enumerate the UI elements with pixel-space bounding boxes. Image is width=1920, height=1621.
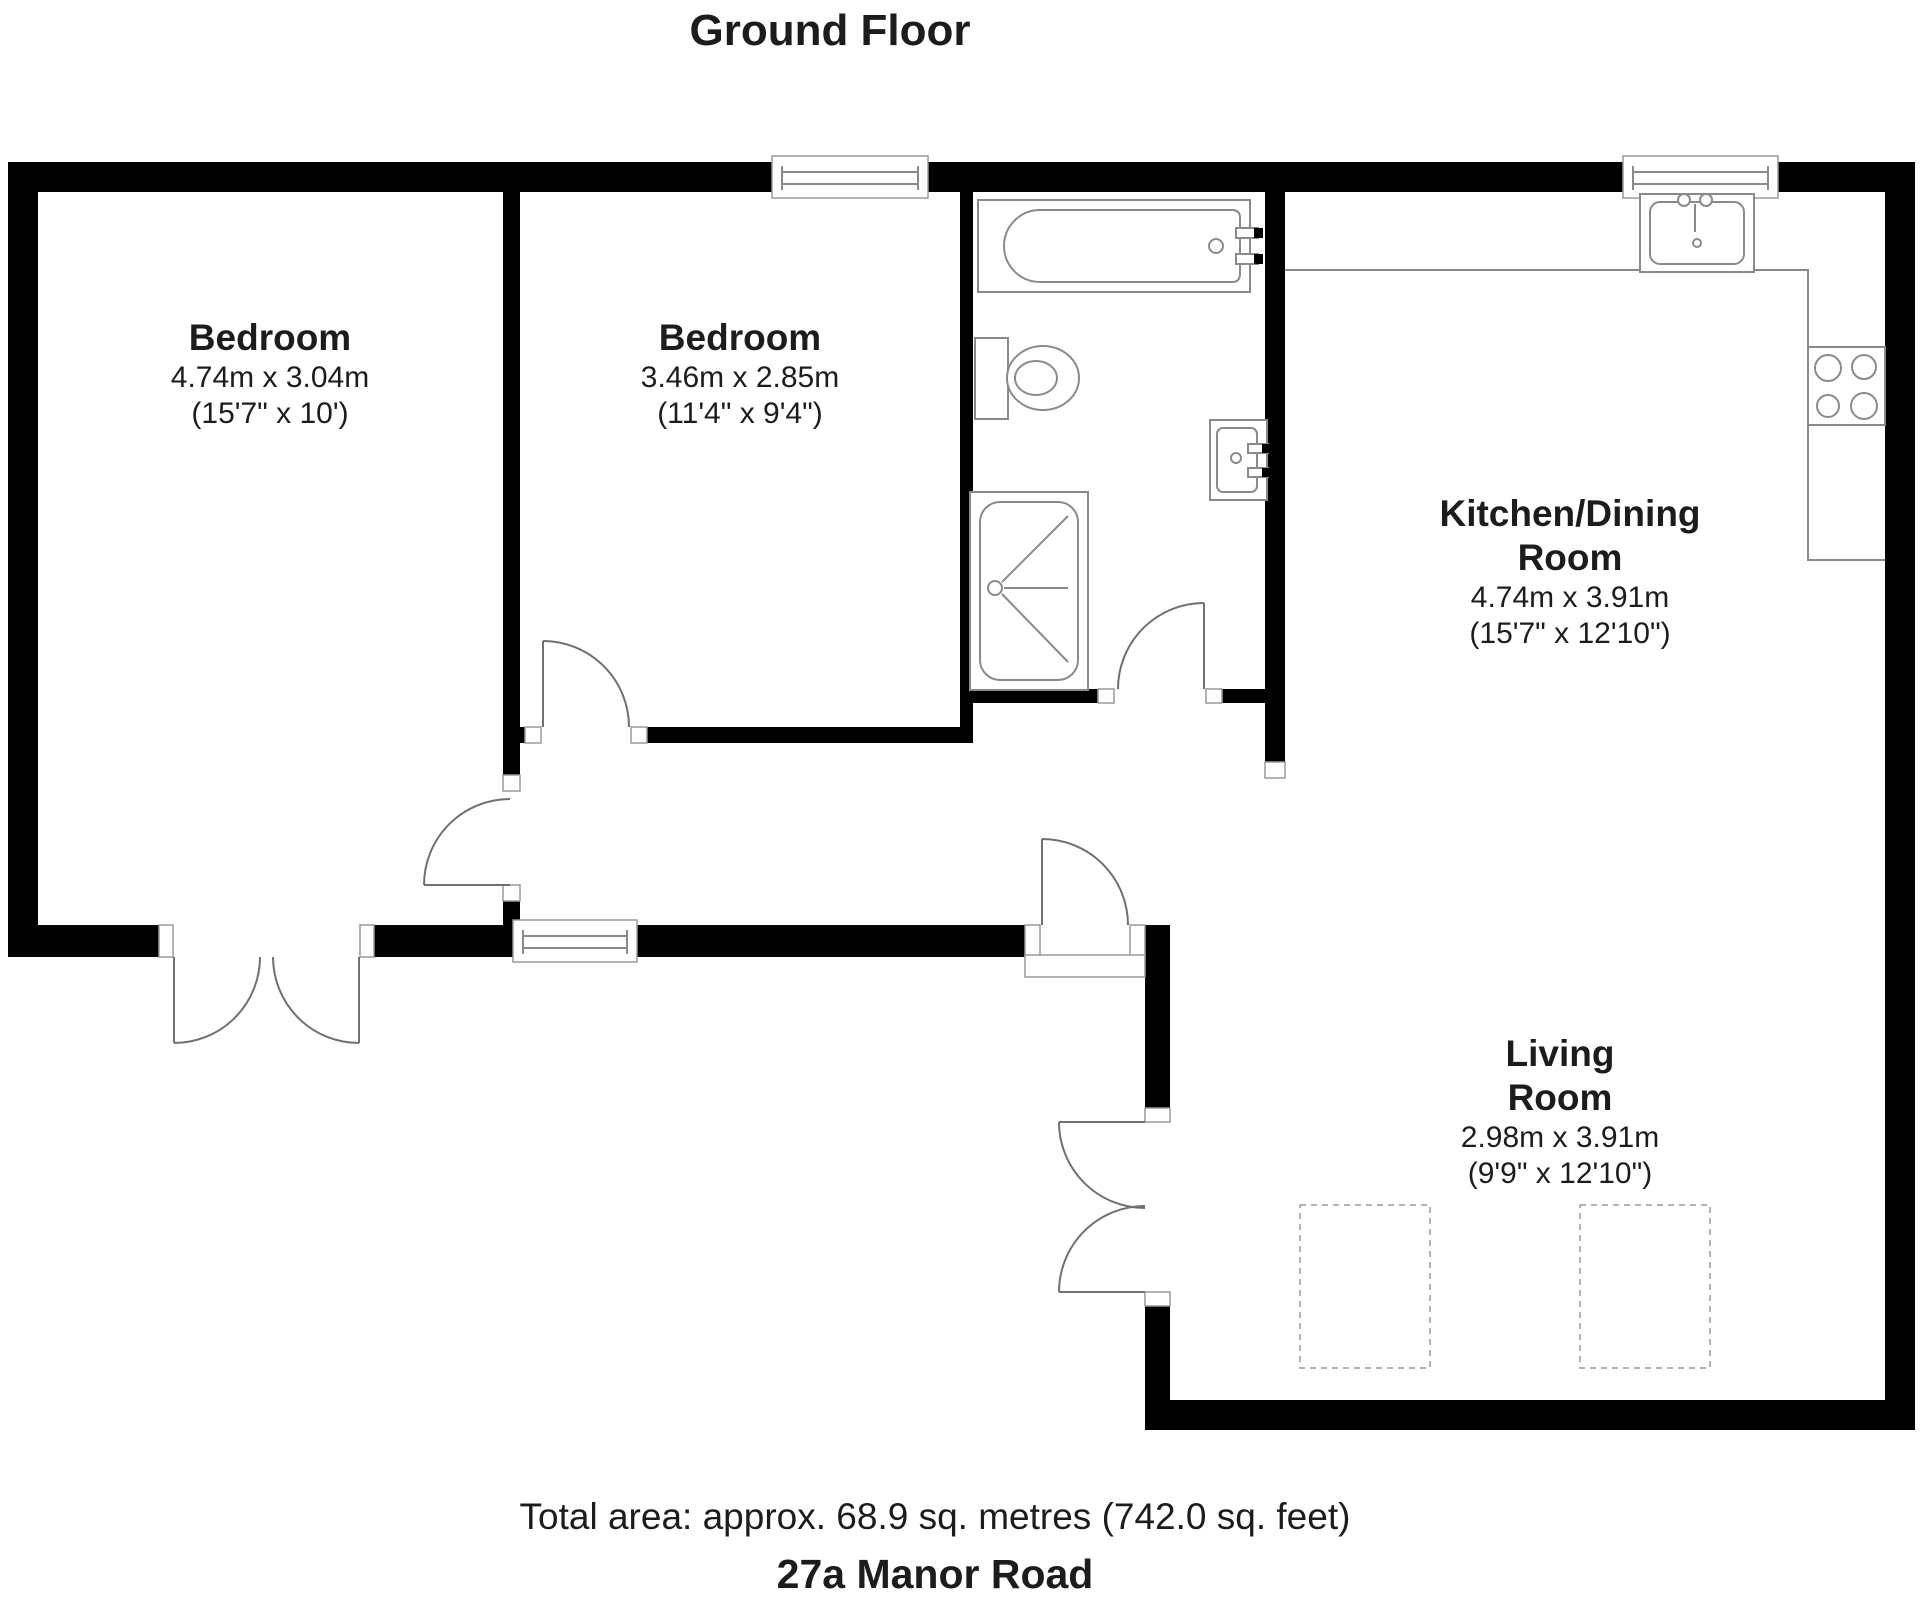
bathtub [978, 200, 1263, 292]
kitchen-imperial: (15'7" x 12'10") [1439, 616, 1700, 652]
bathroom-fixtures [970, 200, 1270, 690]
bedroom2-name: Bedroom [641, 316, 839, 360]
living-metric: 2.98m x 3.91m [1461, 1120, 1659, 1156]
window-kitchen [1623, 156, 1778, 198]
bedroom2-jamb-left [525, 727, 541, 743]
bedroom2-door [543, 641, 629, 727]
toilet [975, 338, 1079, 419]
floorplan-drawing [0, 0, 1920, 1621]
kitchen-name-line1: Kitchen/Dining [1439, 492, 1700, 536]
bedroom1-jamb-top [503, 775, 520, 791]
bedroom2-jamb-right [631, 727, 647, 743]
bathroom-opening [1114, 689, 1206, 703]
bedroom1-imperial: (15'7" x 10') [171, 396, 369, 432]
bedroom1-door [424, 799, 510, 885]
bedroom2-metric: 3.46m x 2.85m [641, 360, 839, 396]
bedroom2-label: Bedroom 3.46m x 2.85m (11'4" x 9'4") [641, 316, 839, 432]
bedroom2-imperial: (11'4" x 9'4") [641, 396, 839, 432]
bedroom2-opening [541, 727, 631, 743]
hall-living-opening [1040, 925, 1130, 957]
living-name-line2: Room [1461, 1076, 1659, 1120]
living-room-label: Living Room 2.98m x 3.91m (9'9" x 12'10"… [1461, 1032, 1659, 1192]
bedroom1-name: Bedroom [171, 316, 369, 360]
furniture-box-2 [1580, 1205, 1710, 1368]
window-top-left [772, 156, 928, 198]
bathroom-sink [1210, 420, 1270, 500]
furniture-box-1 [1300, 1205, 1430, 1368]
wall-bedroom-divider [503, 192, 520, 775]
wall-left [8, 162, 38, 957]
page-title: Ground Floor [689, 6, 970, 56]
kitchen-sink [1640, 194, 1754, 272]
kitchen-label: Kitchen/Dining Room 4.74m x 3.91m (15'7"… [1439, 492, 1700, 652]
wall-living-west-upper [1145, 957, 1170, 1108]
bedroom1-label: Bedroom 4.74m x 3.04m (15'7" x 10') [171, 316, 369, 432]
french-door-jamb-bottom [1145, 1292, 1170, 1306]
hob [1808, 347, 1885, 425]
bedroom1-jamb-bottom [503, 885, 520, 901]
french-door-jamb-top [1145, 1108, 1170, 1122]
bathroom-door [1118, 603, 1204, 689]
kitchen-metric: 4.74m x 3.91m [1439, 580, 1700, 616]
window-hall-bottom [513, 920, 637, 962]
floorplan-page: Ground Floor Bedroom 4.74m x 3.04m (15'7… [0, 0, 1920, 1621]
entrance-opening [173, 925, 360, 957]
bathroom-jamb-left [1098, 689, 1114, 703]
entrance-double-door [174, 957, 359, 1043]
wall-right [1885, 162, 1915, 1430]
hall-living-threshold [1025, 955, 1145, 977]
shower [970, 492, 1088, 690]
living-imperial: (9'9" x 12'10") [1461, 1156, 1659, 1192]
french-door-opening [1145, 1108, 1170, 1306]
hall-living-jamb-left [1025, 925, 1040, 957]
living-name-line1: Living [1461, 1032, 1659, 1076]
address-text: 27a Manor Road [777, 1551, 1094, 1598]
living-french-doors [1059, 1122, 1145, 1292]
wall-living-bottom [1145, 1400, 1915, 1430]
hall-living-door [1042, 839, 1128, 925]
living-room-furniture [1300, 1205, 1710, 1368]
entrance-jamb-left [159, 925, 173, 957]
wall-openings [159, 689, 1285, 1306]
kitchen-name-line2: Room [1439, 536, 1700, 580]
entrance-jamb-right [360, 925, 374, 957]
total-area-text: Total area: approx. 68.9 sq. metres (742… [520, 1496, 1351, 1538]
kitchen-wall-end-jamb [1265, 762, 1285, 778]
bedroom1-metric: 4.74m x 3.04m [171, 360, 369, 396]
hall-living-jamb-right [1130, 925, 1145, 957]
bathroom-jamb-right [1206, 689, 1222, 703]
bedroom1-opening [503, 791, 520, 885]
